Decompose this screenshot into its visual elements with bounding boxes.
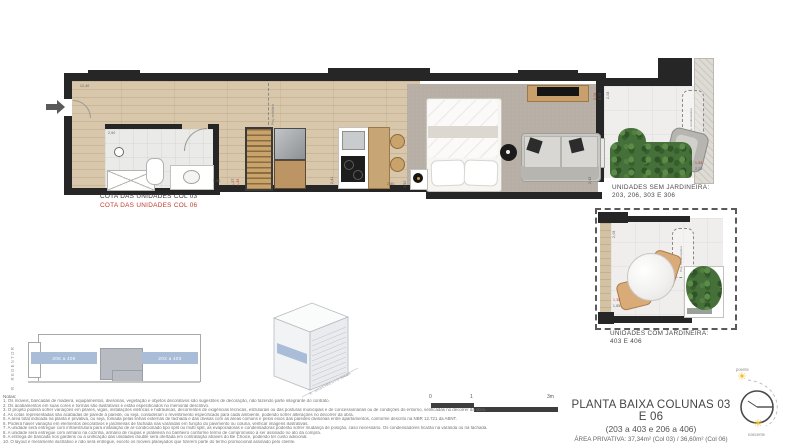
desk-tv — [537, 87, 579, 96]
balcony2-wall — [628, 216, 690, 222]
proj-condensadora-label: Proj. condensadora — [689, 94, 693, 134]
balcony-com-title: UNIDADES COM JARDINEIRA: — [610, 330, 708, 338]
keyplan-highlight-left: 206 a 406 — [31, 352, 97, 364]
balcony2-wall — [612, 316, 692, 323]
sheet-title: PLANTA BAIXA COLUNAS 03 E 06 — [566, 399, 736, 423]
dim-balc1-side: 2,08 — [607, 85, 611, 99]
dim-balc1-red: 1,98 — [695, 162, 702, 166]
entry-arrow-icon — [57, 100, 65, 114]
slatted-closet — [245, 127, 273, 191]
dim-entry: 12,40 — [80, 85, 90, 89]
stool — [390, 134, 405, 149]
north-pointer-tail — [748, 401, 757, 407]
wall-column — [328, 68, 430, 79]
keyplan-highlight-right: 203 a 403 — [142, 352, 198, 364]
dim-kitchen-v: 2,41 — [331, 170, 335, 184]
balcony2-wall — [598, 212, 628, 223]
fridge — [274, 128, 306, 160]
dim-balc2-side: 2,08 — [613, 224, 617, 238]
hedge-planter — [610, 142, 692, 178]
dim-balc1-dark: 2,22 — [695, 168, 702, 172]
wall-left — [64, 73, 72, 195]
dim-bed-h: 2,50 — [387, 183, 394, 187]
proj-mobiliario-label: Proj. mobiliário — [271, 85, 275, 125]
stool — [390, 157, 405, 172]
dim-divider-dark: 5,08 — [599, 86, 603, 100]
pillow — [431, 159, 466, 186]
entry-door-gap — [64, 99, 72, 116]
sun-west-icon: ☀ — [737, 372, 747, 383]
dim-balc2-red: 1,38 — [613, 299, 620, 303]
wall-column — [658, 58, 692, 78]
entry-arrow-icon — [46, 104, 57, 110]
note-item: 10. O layout é meramente ilustrativo e n… — [3, 440, 581, 445]
notes-block: Notas: 1. Os móveis, bancadas de madeira… — [3, 394, 581, 444]
wall-bathroom-top — [105, 124, 182, 129]
shower-head-icon — [114, 147, 124, 157]
wall-column — [88, 70, 140, 81]
balcony-sem-units: 203, 206, 303 E 306 — [612, 192, 675, 200]
wall-bathroom-top — [208, 124, 219, 129]
balcony-com-units: 403 E 406 — [610, 338, 642, 346]
title-block: PLANTA BAIXA COLUNAS 03 E 06 (203 a 403 … — [566, 399, 736, 443]
toilet — [146, 158, 164, 185]
bed-blanket — [428, 126, 498, 138]
cota-col03-label: COTA DAS UNIDADES COL 03 — [100, 193, 197, 201]
keyplan-street-line — [28, 381, 200, 383]
balcony-sem-title: UNIDADES SEM JARDINEIRA: — [612, 184, 709, 192]
dim-bath: 2,50 — [108, 132, 115, 136]
dim-hall: 1,50 — [213, 180, 220, 184]
cota-col06-label: COTA DAS UNIDADES COL 06 — [100, 202, 197, 210]
hall-cabinet — [274, 160, 306, 189]
large-plant — [686, 266, 722, 310]
kitchen-sink — [342, 131, 365, 150]
wall-column — [518, 70, 578, 80]
lamp-center-dot — [506, 150, 510, 154]
lamp-center-dot — [417, 177, 420, 180]
bathroom-sink — [183, 170, 200, 184]
kitchen-island — [368, 127, 390, 189]
burner-icon — [344, 160, 354, 170]
dim-living-v: 2,43 — [589, 170, 593, 184]
dim-balc2-dark: 1,85 — [613, 305, 620, 309]
balcony2-wood-strip — [600, 216, 611, 318]
burner-icon — [353, 170, 363, 180]
wall-balcony-top — [604, 78, 692, 86]
wall-bottom-right — [426, 192, 602, 199]
keyplan-street-label: R. REDENTOR — [10, 334, 15, 390]
sun-east-icon: ☀ — [753, 419, 763, 430]
sheet-area: ÁREA PRIVATIVA: 37,34m² (Col 03) / 36,60… — [566, 436, 736, 443]
floor-plan-sheet: Proj. mobiliário Proj. condensadora — [0, 0, 800, 446]
proj-mobiliario-line — [268, 83, 269, 125]
dim-bed-v: 2,50 — [404, 174, 408, 188]
round-table — [627, 253, 675, 301]
sheet-subtitle: (203 a 403 e 206 a 406) — [566, 424, 736, 434]
pillow — [464, 159, 499, 186]
dim-hall-v2: 1,43 — [237, 172, 241, 186]
nascente-label: nascente — [748, 432, 765, 437]
axonometric-building: R. NASCIMENTO SILVA — [252, 296, 372, 401]
